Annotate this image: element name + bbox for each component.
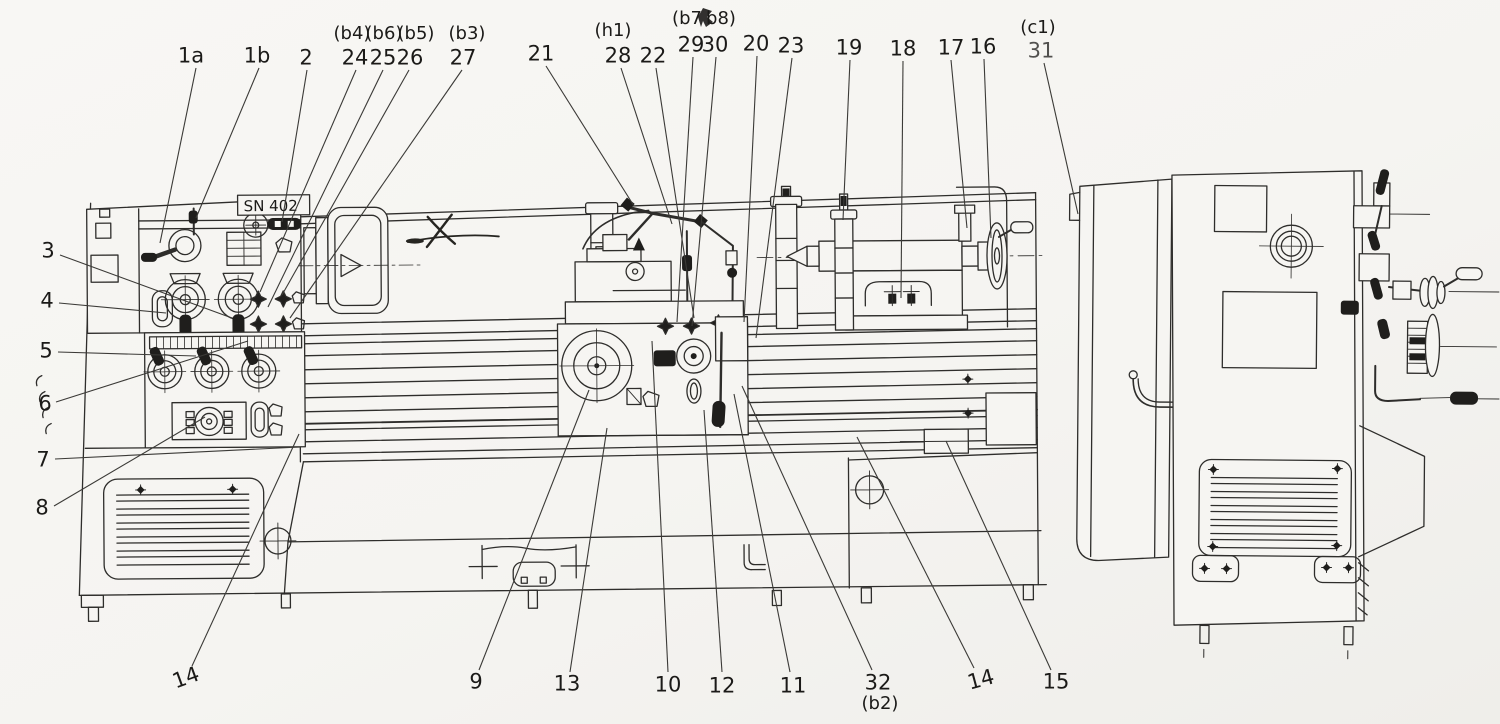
callout-16: 16 xyxy=(970,37,997,58)
callout-3: 3 xyxy=(41,241,54,262)
callout-27: 27 xyxy=(450,48,477,69)
callout-h1: (h1) xyxy=(595,22,632,40)
callout-14a: 14 xyxy=(170,664,202,693)
callout-b8: b8) xyxy=(706,10,736,28)
callout-b5: (b5) xyxy=(398,25,435,43)
callout-11: 11 xyxy=(780,676,807,697)
callout-c1: (c1) xyxy=(1020,19,1055,37)
callout-19: 19 xyxy=(836,38,863,59)
callout-2: 2 xyxy=(299,48,312,69)
callout-4: 4 xyxy=(40,291,53,312)
callout-28: 28 xyxy=(605,46,632,67)
callout-5: 5 xyxy=(39,341,52,362)
callout-30: 30 xyxy=(702,35,729,56)
callout-b3: (b3) xyxy=(449,25,486,43)
callout-23: 23 xyxy=(778,36,805,57)
callout-1a: 1a xyxy=(178,46,204,67)
callout-24: 24 xyxy=(342,48,369,69)
callout-b2: (b2) xyxy=(862,695,899,713)
callout-26: 26 xyxy=(397,48,424,69)
callout-32: 32 xyxy=(865,673,892,694)
callout-12: 12 xyxy=(709,676,736,697)
callout-1b: 1b xyxy=(244,46,271,67)
callout-layer: 1a1b2(b4)(b6)(b5)242526(b3)2721(h1)2822(… xyxy=(0,0,1500,724)
callout-8: 8 xyxy=(35,498,48,519)
callout-21: 21 xyxy=(528,44,555,65)
callout-9: 9 xyxy=(469,672,482,693)
diagram-page: SN 402 xyxy=(0,0,1500,724)
callout-18: 18 xyxy=(890,39,917,60)
callout-10: 10 xyxy=(655,675,682,696)
callout-14b: 14 xyxy=(965,666,996,693)
callout-22: 22 xyxy=(640,46,667,67)
callout-31: 31 xyxy=(1028,41,1055,62)
callout-7: 7 xyxy=(36,450,49,471)
callout-17: 17 xyxy=(938,38,965,59)
callout-15: 15 xyxy=(1043,672,1070,693)
callout-13: 13 xyxy=(554,674,581,695)
callout-29: 29 xyxy=(678,35,705,56)
callout-b7: (b7 xyxy=(672,10,702,28)
callout-6: 6 xyxy=(38,394,51,415)
callout-20: 20 xyxy=(743,34,770,55)
callout-25: 25 xyxy=(370,48,397,69)
